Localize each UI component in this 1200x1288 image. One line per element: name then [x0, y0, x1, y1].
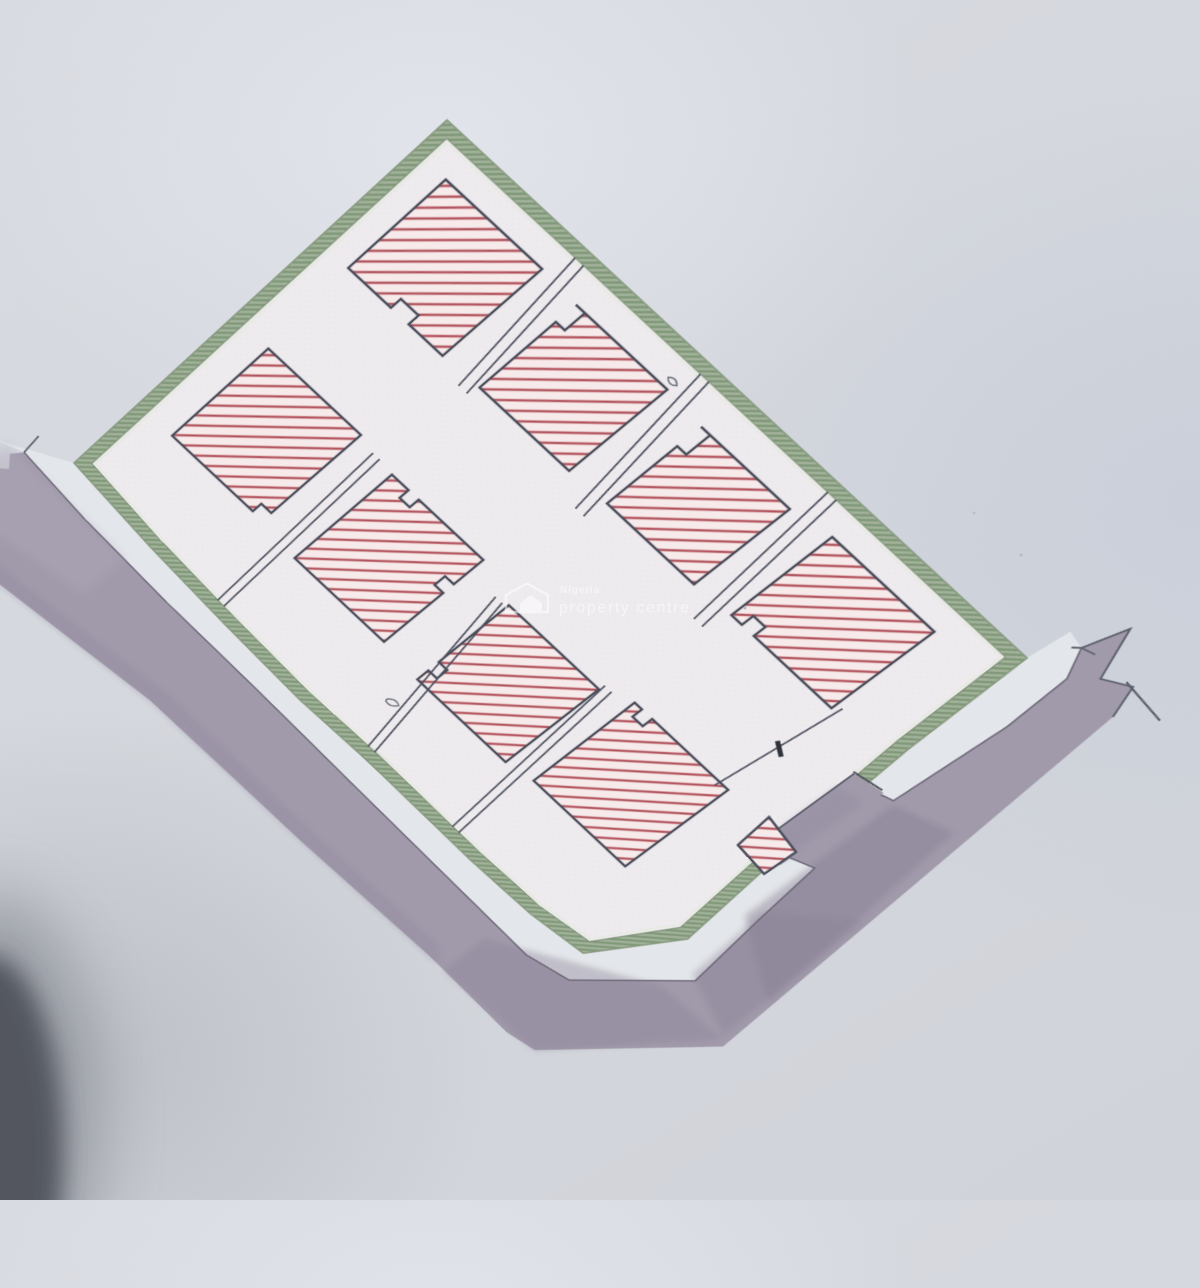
- svg-text:Nigeria: Nigeria: [560, 585, 600, 596]
- svg-text:property centre: property centre: [559, 600, 691, 617]
